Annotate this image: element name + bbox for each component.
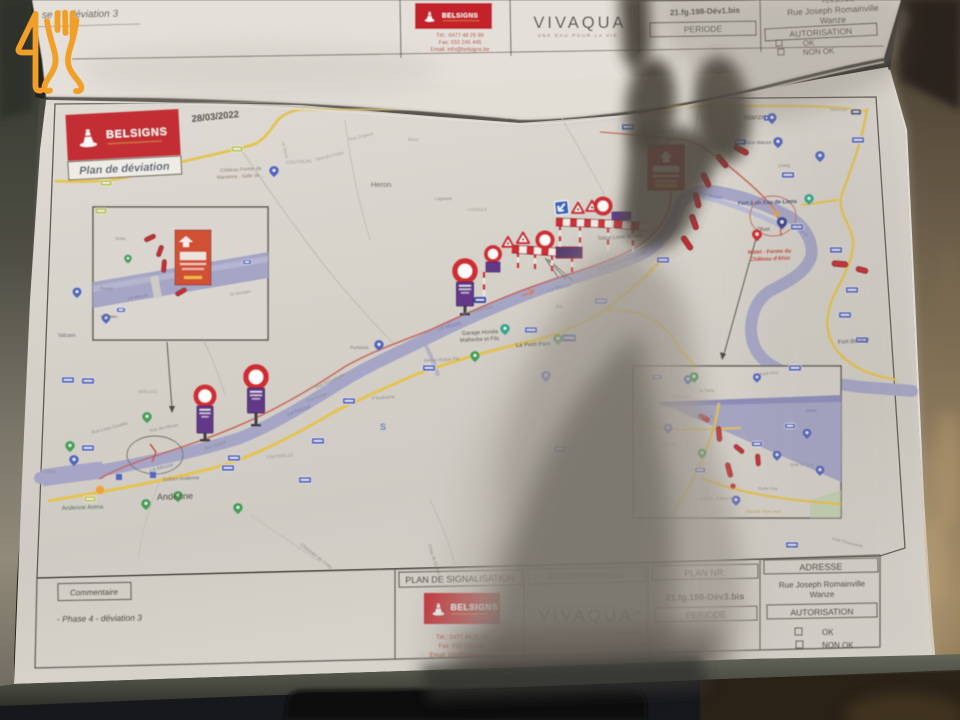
svg-text:se 4 - déviation 3: se 4 - déviation 3 bbox=[42, 9, 119, 21]
svg-text:UNE EAU POUR LA VIE: UNE EAU POUR LA VIE bbox=[538, 33, 619, 38]
svg-text:VIVAQUA: VIVAQUA bbox=[533, 14, 626, 32]
svg-text:BELSIGNS: BELSIGNS bbox=[442, 12, 479, 19]
svg-text:Fax: 010 245 445: Fax: 010 245 445 bbox=[439, 40, 482, 46]
svg-text:Email: info@belsigns.be: Email: info@belsigns.be bbox=[430, 47, 489, 53]
svg-text:Tél.: 0477 48 25 99: Tél.: 0477 48 25 99 bbox=[436, 33, 483, 39]
